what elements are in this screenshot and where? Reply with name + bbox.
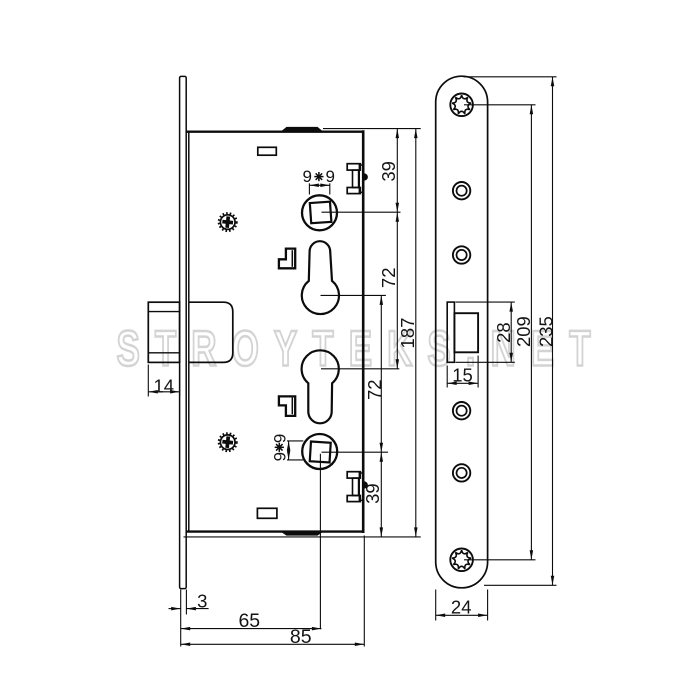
svg-text:187: 187 — [397, 318, 418, 349]
svg-text:235: 235 — [535, 316, 556, 347]
svg-text:14: 14 — [154, 376, 175, 397]
svg-text:39: 39 — [362, 483, 383, 504]
svg-text:9: 9 — [271, 452, 290, 461]
svg-text:85: 85 — [290, 626, 312, 648]
svg-text:72: 72 — [378, 268, 399, 289]
svg-text:9: 9 — [271, 434, 290, 443]
svg-text:72: 72 — [364, 379, 385, 400]
svg-text:15: 15 — [452, 365, 473, 386]
svg-text:3: 3 — [197, 590, 207, 611]
svg-text:209: 209 — [513, 316, 534, 347]
svg-text:24: 24 — [451, 597, 472, 618]
svg-text:39: 39 — [378, 161, 399, 182]
svg-text:28: 28 — [493, 322, 514, 343]
svg-text:65: 65 — [238, 610, 260, 632]
svg-text:9: 9 — [325, 167, 334, 186]
svg-text:9: 9 — [302, 167, 311, 186]
